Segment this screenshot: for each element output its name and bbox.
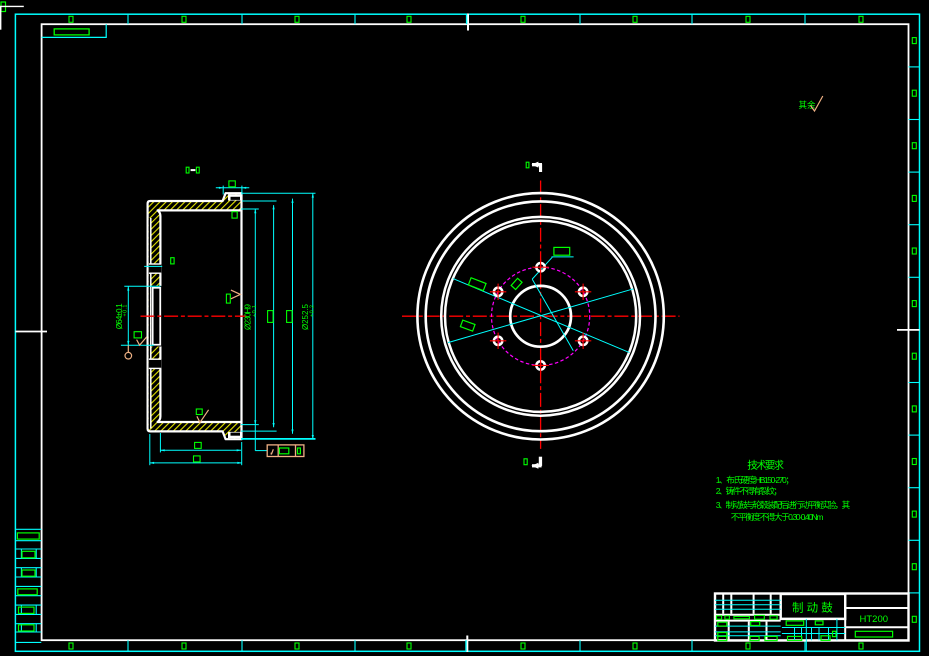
svg-text:不平衡度不得大于0.30-0.40Nm: 不平衡度不得大于0.30-0.40Nm — [731, 511, 824, 522]
svg-text:制 动 鼓: 制 动 鼓 — [792, 601, 833, 615]
svg-text:1、布氏硬度HB150-270；: 1、布氏硬度HB150-270； — [716, 474, 794, 485]
svg-text:HT200: HT200 — [860, 614, 889, 625]
svg-text:技术要求: 技术要求 — [747, 459, 784, 472]
svg-text:+0.1: +0.1 — [122, 305, 128, 317]
svg-text:2、铸件不得有裂纹；: 2、铸件不得有裂纹； — [716, 485, 782, 496]
svg-text:+0.2: +0.2 — [309, 305, 315, 317]
svg-text:+0.1: +0.1 — [252, 305, 258, 317]
svg-text:3、制动鼓与轮毂装配后进行动平衡实验，其: 3、制动鼓与轮毂装配后进行动平衡实验，其 — [716, 499, 851, 510]
